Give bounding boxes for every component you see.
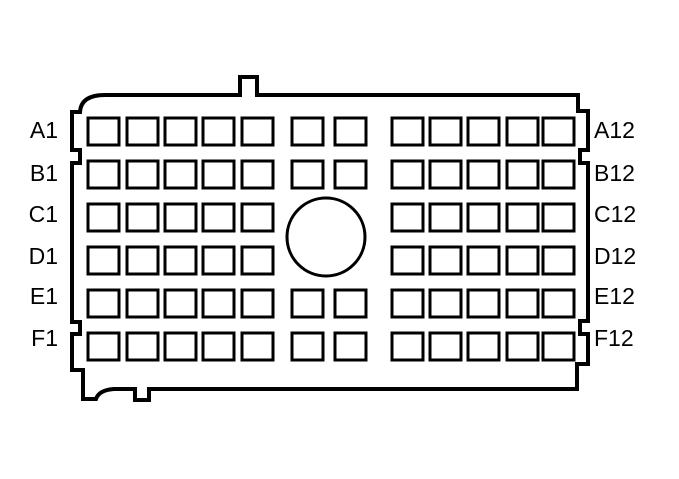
- pin-cell: [335, 290, 366, 317]
- pin-cell: [292, 333, 323, 360]
- pin-cell: [392, 333, 423, 360]
- pin-cell: [468, 333, 499, 360]
- pin-cell: [543, 333, 574, 360]
- pin-cell: [165, 333, 196, 360]
- pin-cell: [430, 247, 461, 274]
- row-label-f12: F12: [594, 325, 634, 351]
- pin-cell: [292, 290, 323, 317]
- row-label-b12: B12: [594, 160, 635, 186]
- pin-cell: [507, 333, 538, 360]
- center-circle: [287, 198, 365, 276]
- fuse-block-pinout-diagram: A1 B1 C1 D1 E1 F1 A12 B12 C12 D12 E12 F1…: [0, 0, 679, 479]
- pin-cell: [127, 118, 158, 145]
- pin-cell: [203, 290, 234, 317]
- pin-cell: [292, 118, 323, 145]
- pin-cell: [165, 118, 196, 145]
- pin-cell: [88, 247, 119, 274]
- pin-cell: [507, 247, 538, 274]
- pin-cell: [203, 204, 234, 231]
- row-label-e12: E12: [594, 283, 635, 309]
- pin-cell: [242, 204, 273, 231]
- pin-cell: [392, 161, 423, 188]
- row-label-e1: E1: [0, 283, 58, 309]
- pin-cell: [88, 333, 119, 360]
- pin-cell: [242, 247, 273, 274]
- pin-cell: [127, 161, 158, 188]
- row-label-d12: D12: [594, 243, 636, 269]
- row-label-c1: C1: [0, 201, 58, 227]
- pin-cell: [468, 290, 499, 317]
- pin-cell: [88, 161, 119, 188]
- pin-cell: [203, 247, 234, 274]
- pin-cell: [335, 161, 366, 188]
- pin-cell: [203, 118, 234, 145]
- pin-cell: [242, 290, 273, 317]
- pin-cell: [203, 333, 234, 360]
- pin-cell: [292, 161, 323, 188]
- pin-cell: [392, 290, 423, 317]
- pin-cell: [507, 204, 538, 231]
- pin-cell: [203, 161, 234, 188]
- pin-cell: [507, 118, 538, 145]
- row-label-b1: B1: [0, 160, 58, 186]
- pin-cell: [543, 247, 574, 274]
- pin-cell: [430, 290, 461, 317]
- pin-cell: [127, 290, 158, 317]
- pin-cell: [335, 118, 366, 145]
- pin-cell: [392, 204, 423, 231]
- pin-cell: [242, 333, 273, 360]
- row-label-c12: C12: [594, 201, 636, 227]
- pin-cell: [392, 118, 423, 145]
- pin-cell: [430, 118, 461, 145]
- row-label-d1: D1: [0, 243, 58, 269]
- pin-cell: [468, 204, 499, 231]
- pin-cell: [165, 247, 196, 274]
- pin-cell: [543, 204, 574, 231]
- pin-cell: [543, 161, 574, 188]
- pin-cell: [88, 118, 119, 145]
- pin-cell: [165, 161, 196, 188]
- pin-cell: [430, 333, 461, 360]
- pin-cell: [468, 161, 499, 188]
- connector-drawing: [0, 0, 679, 479]
- pin-cell: [468, 247, 499, 274]
- pin-cell: [242, 161, 273, 188]
- pin-cell: [88, 204, 119, 231]
- row-label-f1: F1: [0, 325, 58, 351]
- pin-cell: [127, 247, 158, 274]
- pin-cell: [430, 204, 461, 231]
- pin-cell: [392, 247, 423, 274]
- pin-cell: [88, 290, 119, 317]
- pin-cell: [335, 333, 366, 360]
- pin-cell: [165, 290, 196, 317]
- pin-cell: [165, 204, 196, 231]
- pin-cell: [242, 118, 273, 145]
- row-label-a12: A12: [594, 117, 635, 143]
- pin-cell: [468, 118, 499, 145]
- row-label-a1: A1: [0, 117, 58, 143]
- pin-cell: [543, 118, 574, 145]
- pin-cell: [127, 204, 158, 231]
- pin-cell: [507, 161, 538, 188]
- pin-cell: [507, 290, 538, 317]
- pin-cell: [127, 333, 158, 360]
- pin-cell: [430, 161, 461, 188]
- pin-cell: [543, 290, 574, 317]
